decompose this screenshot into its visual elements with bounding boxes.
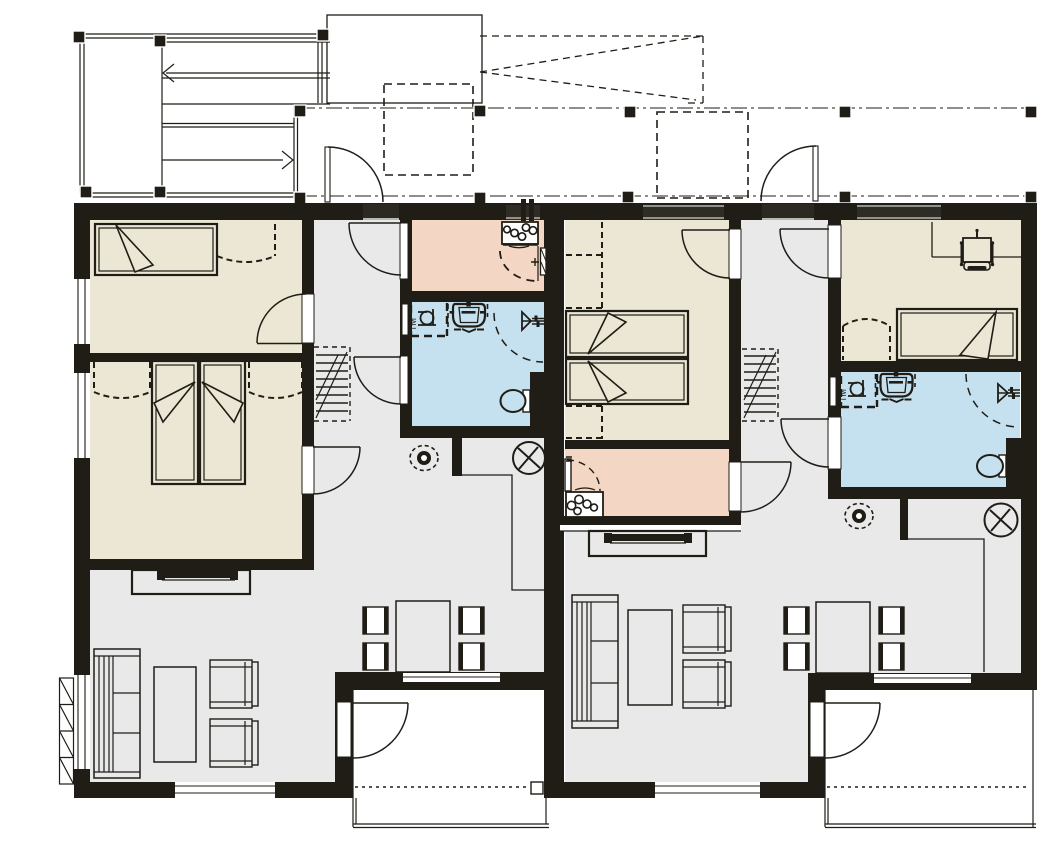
svg-text:TM: TM — [838, 389, 848, 402]
svg-text:TM: TM — [408, 318, 418, 331]
